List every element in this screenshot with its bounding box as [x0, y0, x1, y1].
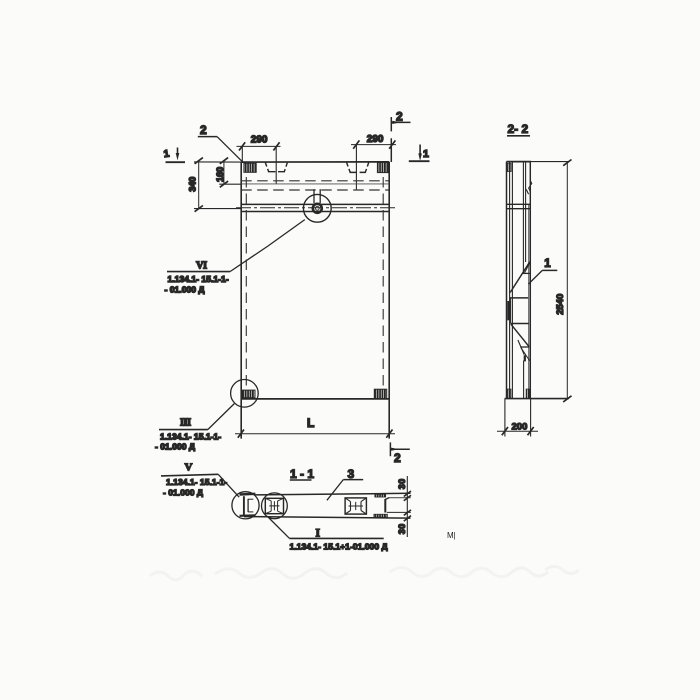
svg-text:2: 2 [396, 110, 403, 124]
svg-text:- 01.000 Д: - 01.000 Д [165, 285, 205, 295]
svg-text:2- 2: 2- 2 [508, 122, 529, 136]
svg-text:1.134.1- 15.1-1-: 1.134.1- 15.1-1- [168, 274, 229, 284]
svg-text:VI: VI [196, 260, 207, 271]
svg-text:- 01.000 Д: - 01.000 Д [163, 487, 203, 497]
svg-text:340: 340 [188, 177, 198, 192]
svg-text:2540: 2540 [555, 294, 566, 315]
svg-text:290: 290 [251, 134, 268, 145]
svg-text:М|: М| [447, 531, 456, 540]
svg-text:III: III [180, 418, 191, 429]
svg-text:L: L [307, 416, 314, 430]
svg-text:V: V [185, 461, 193, 473]
svg-text:I: I [316, 527, 321, 539]
svg-text:1.134.1- 15.1+1-01.000 Д: 1.134.1- 15.1+1-01.000 Д [290, 542, 388, 552]
svg-text:1: 1 [544, 258, 551, 270]
svg-text:1 - 1: 1 - 1 [290, 467, 314, 481]
svg-text:2: 2 [394, 451, 401, 465]
svg-text:- 01.000 Д: - 01.000 Д [155, 442, 195, 452]
svg-text:1: 1 [423, 148, 429, 160]
svg-text:30: 30 [397, 478, 407, 489]
svg-text:1.134.1- 15.1-1-: 1.134.1- 15.1-1- [166, 477, 227, 487]
svg-text:30: 30 [397, 523, 407, 534]
svg-text:290: 290 [367, 134, 384, 145]
svg-text:1.134.1- 15.1-1-: 1.134.1- 15.1-1- [160, 431, 221, 441]
svg-text:2: 2 [200, 123, 207, 137]
